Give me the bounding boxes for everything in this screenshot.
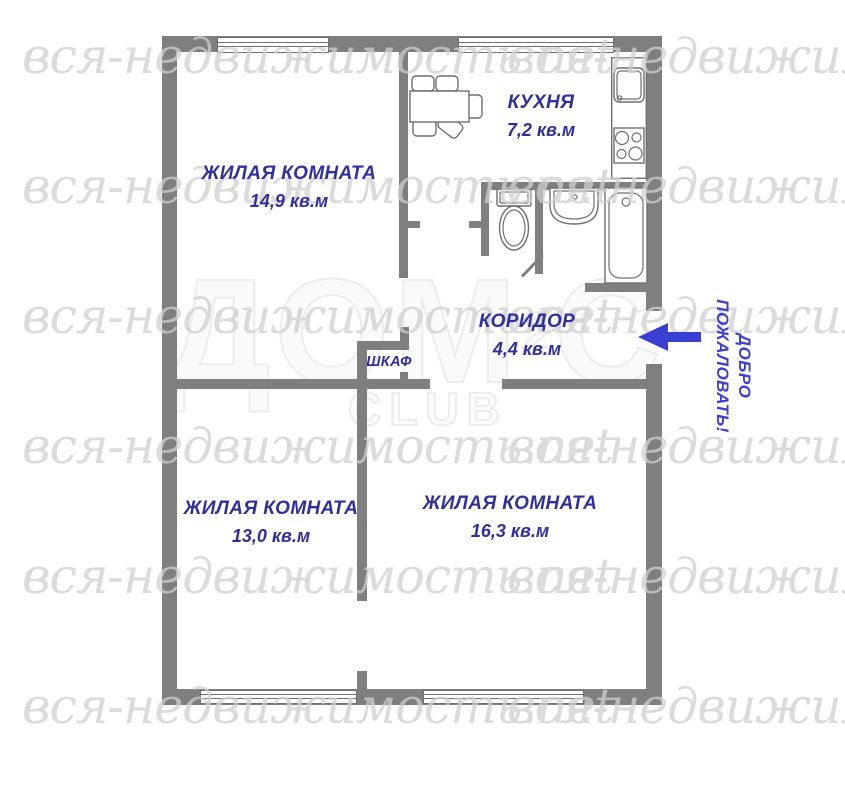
room-label-corridor: КОРИДОР 4,4 кв.м	[479, 311, 576, 360]
floor-plan: ДОМ2С CLUB	[0, 0, 845, 788]
room-label-closet: ШКАФ	[366, 354, 412, 370]
room-label-kitchen: КУХНЯ 7,2 кв.м	[507, 92, 575, 141]
welcome-label: ДОБРО ПОЖАЛОВАТЬ!	[711, 281, 755, 451]
room-label-living-130: ЖИЛАЯ КОМНАТА 13,0 кв.м	[184, 498, 359, 547]
room-label-living-163: ЖИЛАЯ КОМНАТА 16,3 кв.м	[423, 493, 598, 542]
entrance-arrow-icon	[638, 321, 702, 353]
label-layer: ЖИЛАЯ КОМНАТА 14,9 кв.м КУХНЯ 7,2 кв.м К…	[0, 0, 845, 788]
room-label-living-149: ЖИЛАЯ КОМНАТА 14,9 кв.м	[202, 163, 377, 212]
